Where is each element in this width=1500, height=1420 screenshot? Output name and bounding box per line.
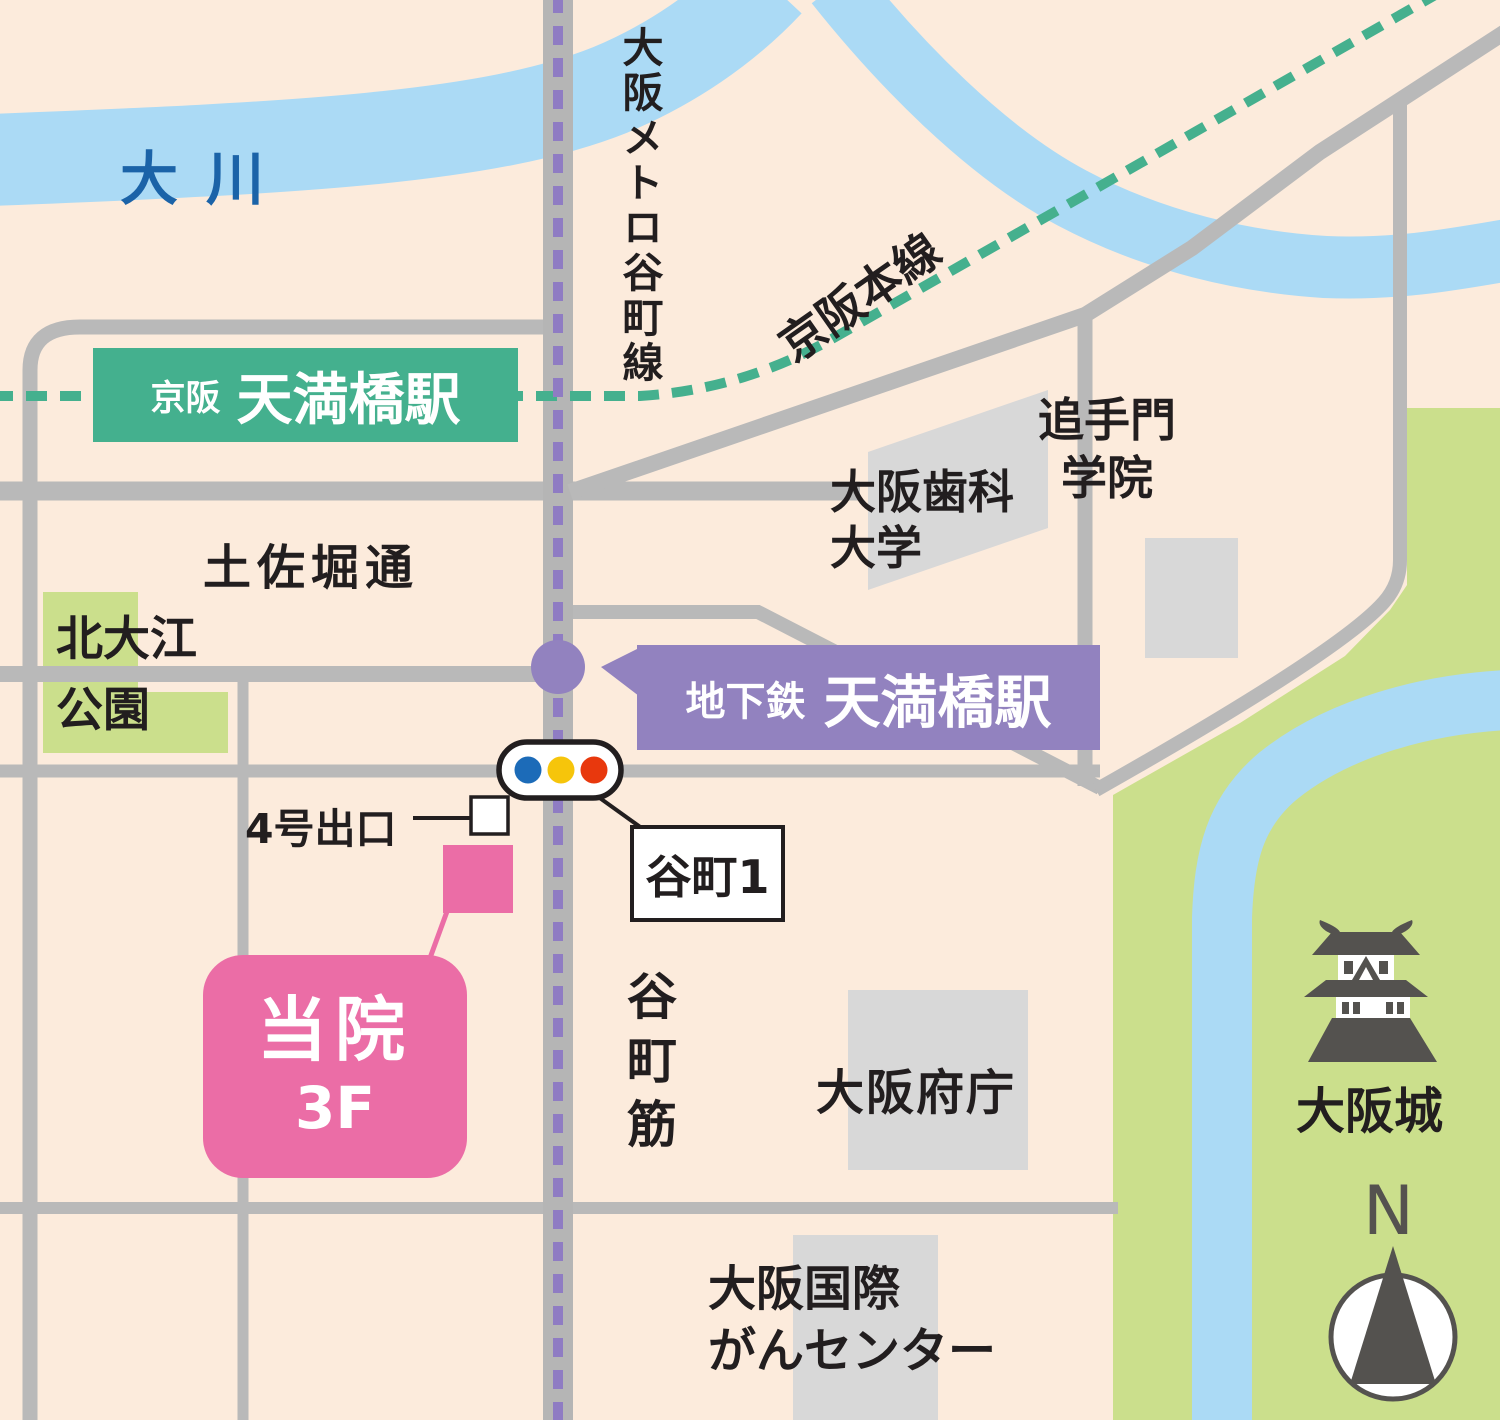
exit4-label: 4号出口 (245, 795, 397, 855)
prefectural-office-label: 大阪府庁 (816, 1053, 1016, 1123)
tosabori-road-label: 土佐堀通 (203, 528, 419, 598)
signal-yellow-light (548, 757, 575, 784)
cancer-center-label: 大阪国際 がんセンター (708, 1258, 996, 1383)
subway-callout-pointer (601, 648, 639, 696)
clinic-name: 当院 (257, 992, 413, 1069)
clinic-building-square (443, 845, 513, 913)
keihan-station-label: 京阪 天満橋駅 (93, 348, 518, 442)
access-map: 大川 大阪メトロ谷町線 京阪本線 京阪 天満橋駅 地下鉄 天満橋駅 土佐堀通 北… (0, 0, 1500, 1420)
clinic-callout: 当院 3F (203, 955, 467, 1178)
cancer-center-line2: がんセンター (708, 1320, 996, 1382)
dental-university-line2: 大学 (830, 520, 1014, 576)
otemon-building (1145, 538, 1238, 658)
subway-station-label: 地下鉄 天満橋駅 (637, 645, 1100, 750)
traffic-signal-icon (499, 742, 621, 798)
signal-blue-light (515, 757, 542, 784)
keihan-station-name: 天満橋駅 (237, 355, 461, 436)
otemon-gakuin-label: 追手門 学院 (1037, 392, 1177, 508)
cancer-center-line1: 大阪国際 (708, 1258, 996, 1320)
exit-square (471, 797, 508, 834)
subway-station-marker (531, 640, 585, 694)
metro-line-label: 大阪メトロ谷町線 (609, 26, 669, 386)
clinic-floor: 3F (295, 1075, 375, 1142)
clinic-leader-line (430, 906, 449, 958)
tanimachisuji-road-label: 谷町筋 (612, 970, 684, 1162)
dental-university-line1: 大阪歯科 (830, 464, 1014, 520)
osaka-castle-label: 大阪城 (1296, 1072, 1443, 1143)
signal-red-light (581, 757, 608, 784)
okawa-river-label: 大川 (120, 132, 292, 216)
otemon-line1: 追手門 (1037, 392, 1177, 450)
dental-university-label: 大阪歯科 大学 (830, 464, 1014, 576)
kitaoe-park-label: 北大江 公園 (56, 604, 197, 747)
compass-n-label: N (1363, 1172, 1414, 1251)
keihan-company: 京阪 (150, 370, 220, 421)
otemon-line2: 学院 (1037, 450, 1177, 508)
subway-system: 地下鉄 (686, 669, 806, 727)
kitaoe-park-line1: 北大江 (56, 604, 197, 675)
subway-station-name: 天満橋駅 (824, 657, 1052, 739)
tanimachi1-intersection-label: 谷町1 (630, 825, 785, 922)
kitaoe-park-line2: 公園 (56, 675, 197, 746)
